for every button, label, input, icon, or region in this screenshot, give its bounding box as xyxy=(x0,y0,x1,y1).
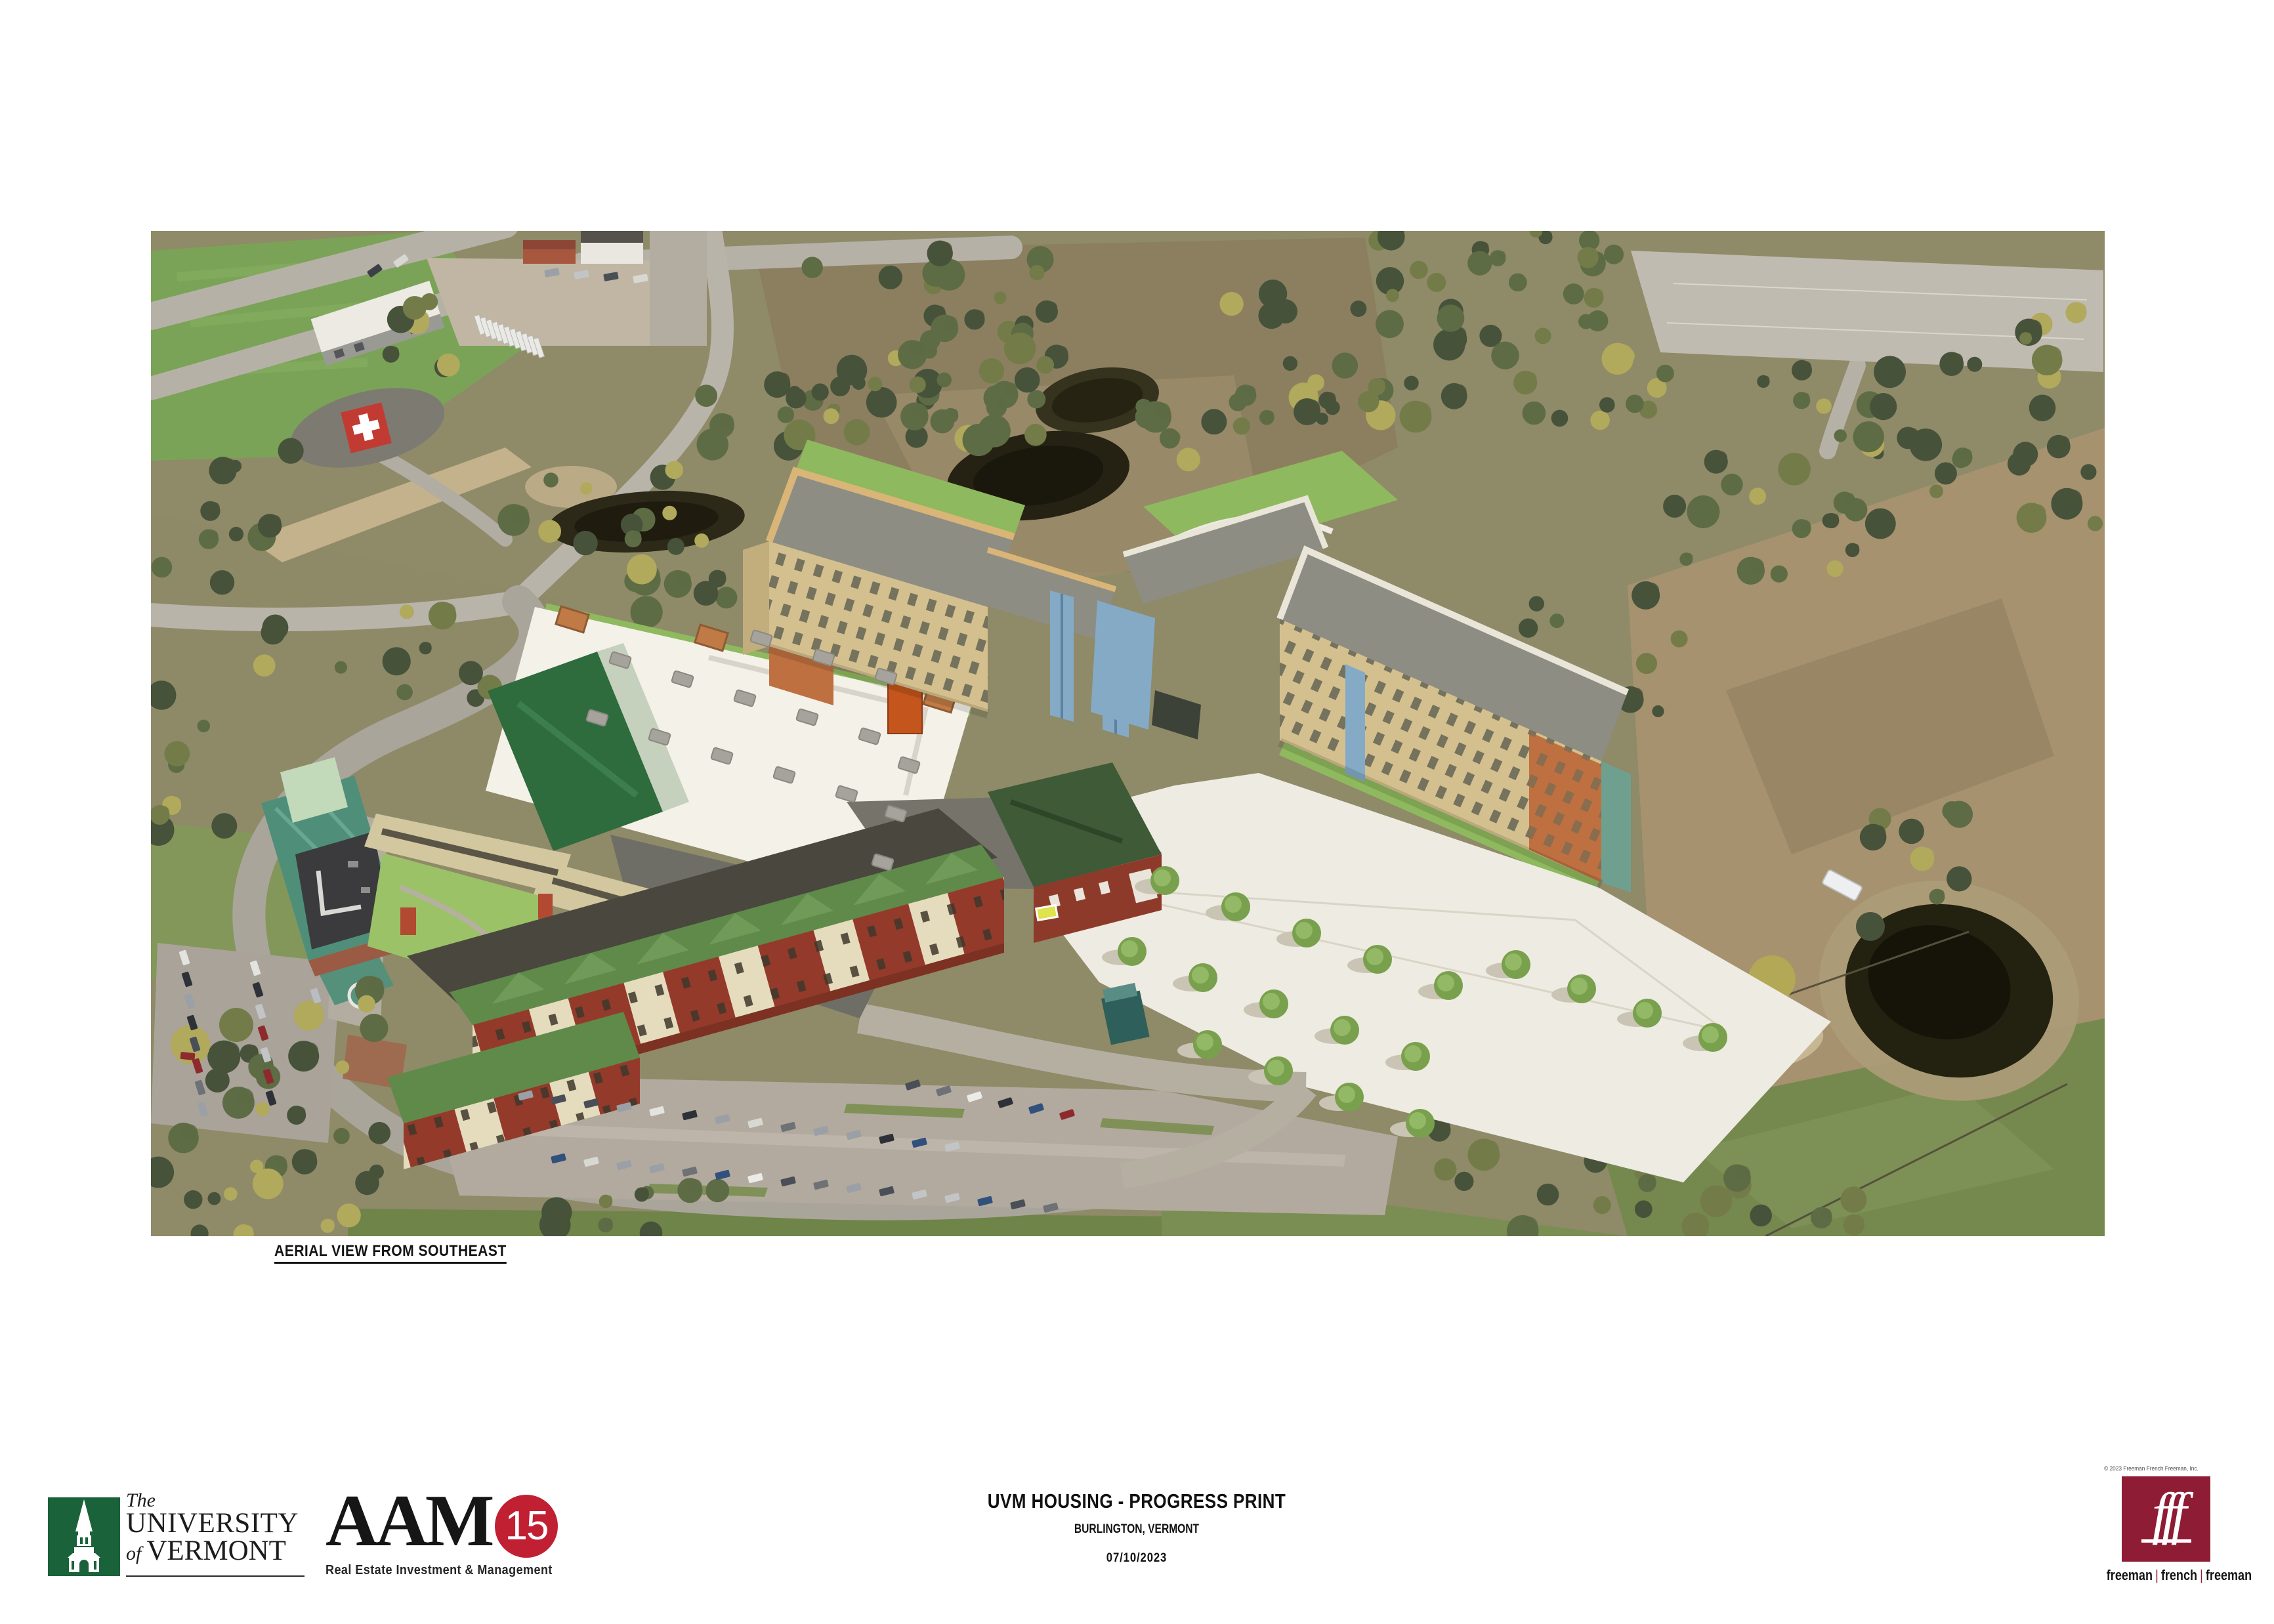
uvm-rule xyxy=(126,1575,305,1577)
industrial-red-building xyxy=(523,240,576,264)
sheet-title: UVM HOUSING - PROGRESS PRINT xyxy=(861,1489,1412,1513)
fff-monogram-baseline xyxy=(2141,1539,2191,1543)
uvm-wordmark: The UNIVERSITY ofVERMONT xyxy=(126,1491,310,1568)
fff-monogram: fff xyxy=(2122,1482,2210,1547)
fff-word-freeman-2: freeman xyxy=(2206,1567,2252,1583)
aerial-rendering xyxy=(151,231,2105,1236)
uvm-logo-square xyxy=(48,1497,120,1576)
fff-separator: | xyxy=(2153,1567,2161,1583)
ambulance xyxy=(1036,906,1058,921)
uvm-word-of: of xyxy=(126,1543,141,1564)
aerial-caption: AERIAL VIEW FROM SOUTHEAST xyxy=(274,1242,507,1264)
aam15-logo: AAM 15 Real Estate Investment & Manageme… xyxy=(326,1484,575,1578)
progress-print-sheet: AERIAL VIEW FROM SOUTHEAST The UNIVERSIT… xyxy=(0,0,2274,1624)
fff-copyright: © 2023 Freeman French Freeman, Inc. xyxy=(2091,1465,2212,1472)
fff-wordmark: freeman|french|freeman xyxy=(2107,1567,2225,1584)
title-block: UVM HOUSING - PROGRESS PRINT BURLINGTON,… xyxy=(809,1489,1465,1566)
uvm-word-university: UNIVERSITY xyxy=(126,1510,310,1537)
lot-top-right xyxy=(1631,251,2103,372)
dorm2-glass-strip xyxy=(1345,664,1365,782)
aam-15-badge: 15 xyxy=(495,1495,558,1558)
sheet-location: BURLINGTON, VERMONT xyxy=(868,1522,1406,1537)
fff-word-freeman-1: freeman xyxy=(2107,1567,2153,1583)
dorm2-teal-cap xyxy=(1601,761,1631,892)
aerial-scene xyxy=(151,231,2105,1236)
lot-top-left xyxy=(427,258,650,346)
sheet-date: 07/10/2023 xyxy=(848,1551,1425,1566)
uvm-tower-icon xyxy=(48,1497,120,1576)
fff-word-french: french xyxy=(2161,1567,2197,1583)
fff-logo-square: fff xyxy=(2122,1476,2210,1562)
fff-separator: | xyxy=(2197,1567,2206,1583)
industrial-white-building xyxy=(581,231,643,264)
uvm-word-vermont: VERMONT xyxy=(146,1535,286,1566)
aam-tagline: Real Estate Investment & Management xyxy=(326,1563,550,1578)
aam-wordmark: AAM xyxy=(326,1480,491,1562)
